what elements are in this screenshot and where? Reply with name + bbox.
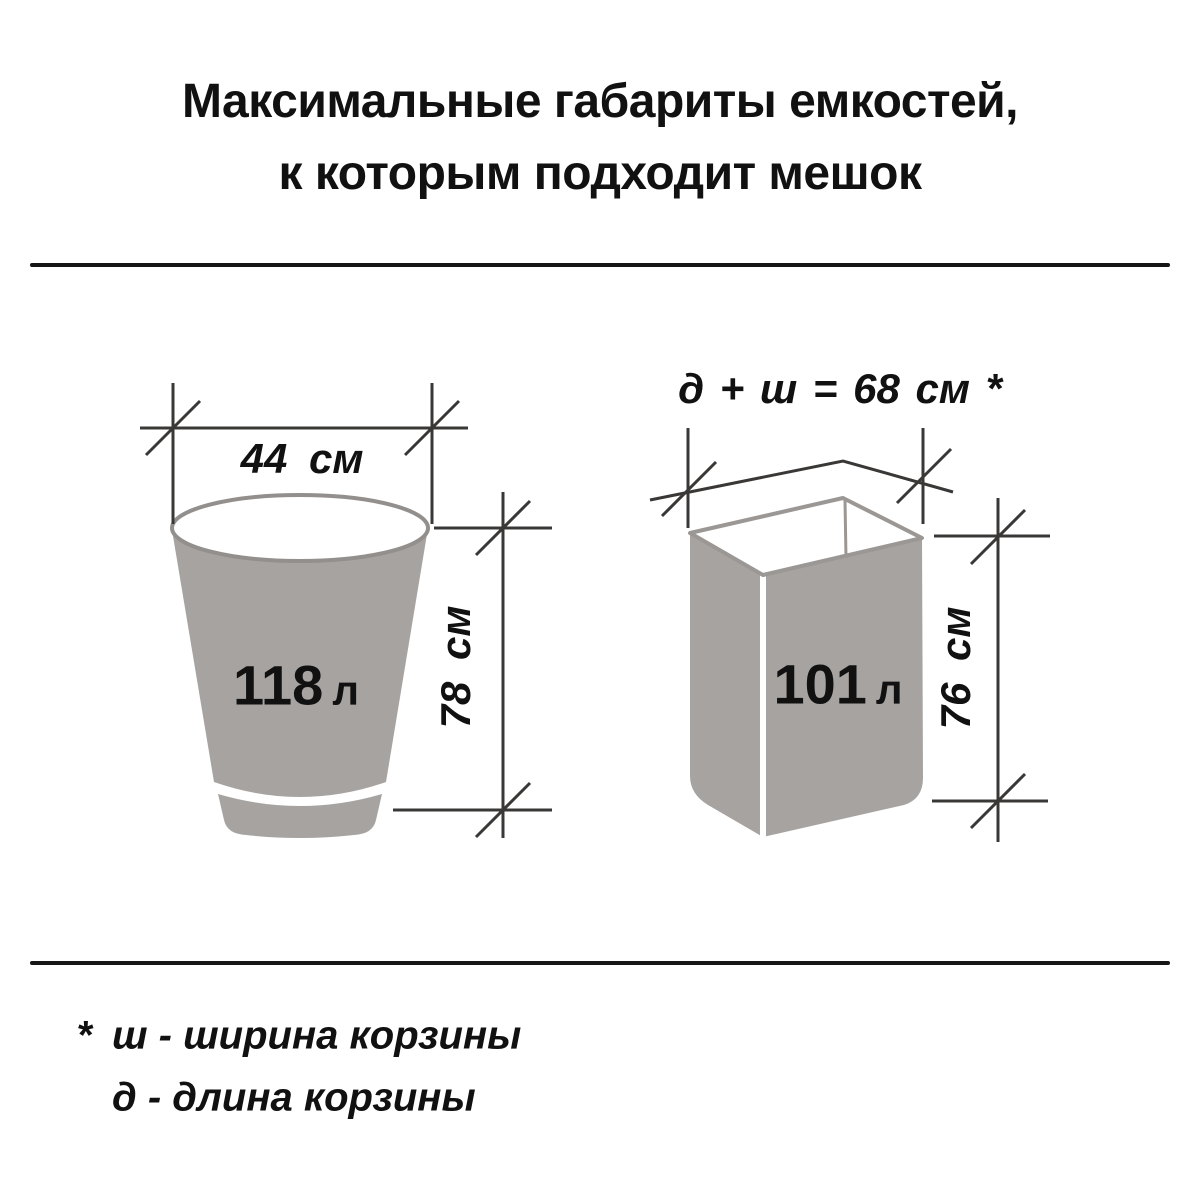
bucket-volume-label: 118л	[233, 653, 359, 718]
basket-left-face	[690, 533, 763, 837]
basket-volume-unit: л	[876, 666, 903, 713]
basket-formula-label: д + ш = 68 см *	[678, 365, 1002, 413]
basket-height-label: 76 см	[932, 607, 980, 730]
footnote-line2: д - длина корзины	[112, 1076, 476, 1121]
bucket-base	[218, 794, 382, 838]
bucket-width-label: 44 см	[241, 435, 364, 483]
bucket-opening	[172, 495, 428, 561]
basket-volume-value: 101	[773, 653, 866, 716]
basket-inner-corner-edge	[845, 500, 846, 558]
basket-volume-label: 101л	[773, 652, 902, 717]
bucket-volume-unit: л	[332, 667, 359, 714]
footnote-line1-text: ш - ширина корзины	[112, 1014, 521, 1058]
infographic-page: Максимальные габариты емкостей, к которы…	[0, 0, 1200, 1200]
footnote-line2-text: д - длина корзины	[112, 1076, 476, 1120]
footnote-asterisk: *	[78, 1014, 112, 1059]
bucket-volume-value: 118	[233, 654, 323, 717]
bucket-height-label: 78 см	[432, 606, 480, 729]
footnote-line1: *ш - ширина корзины	[78, 1014, 521, 1059]
